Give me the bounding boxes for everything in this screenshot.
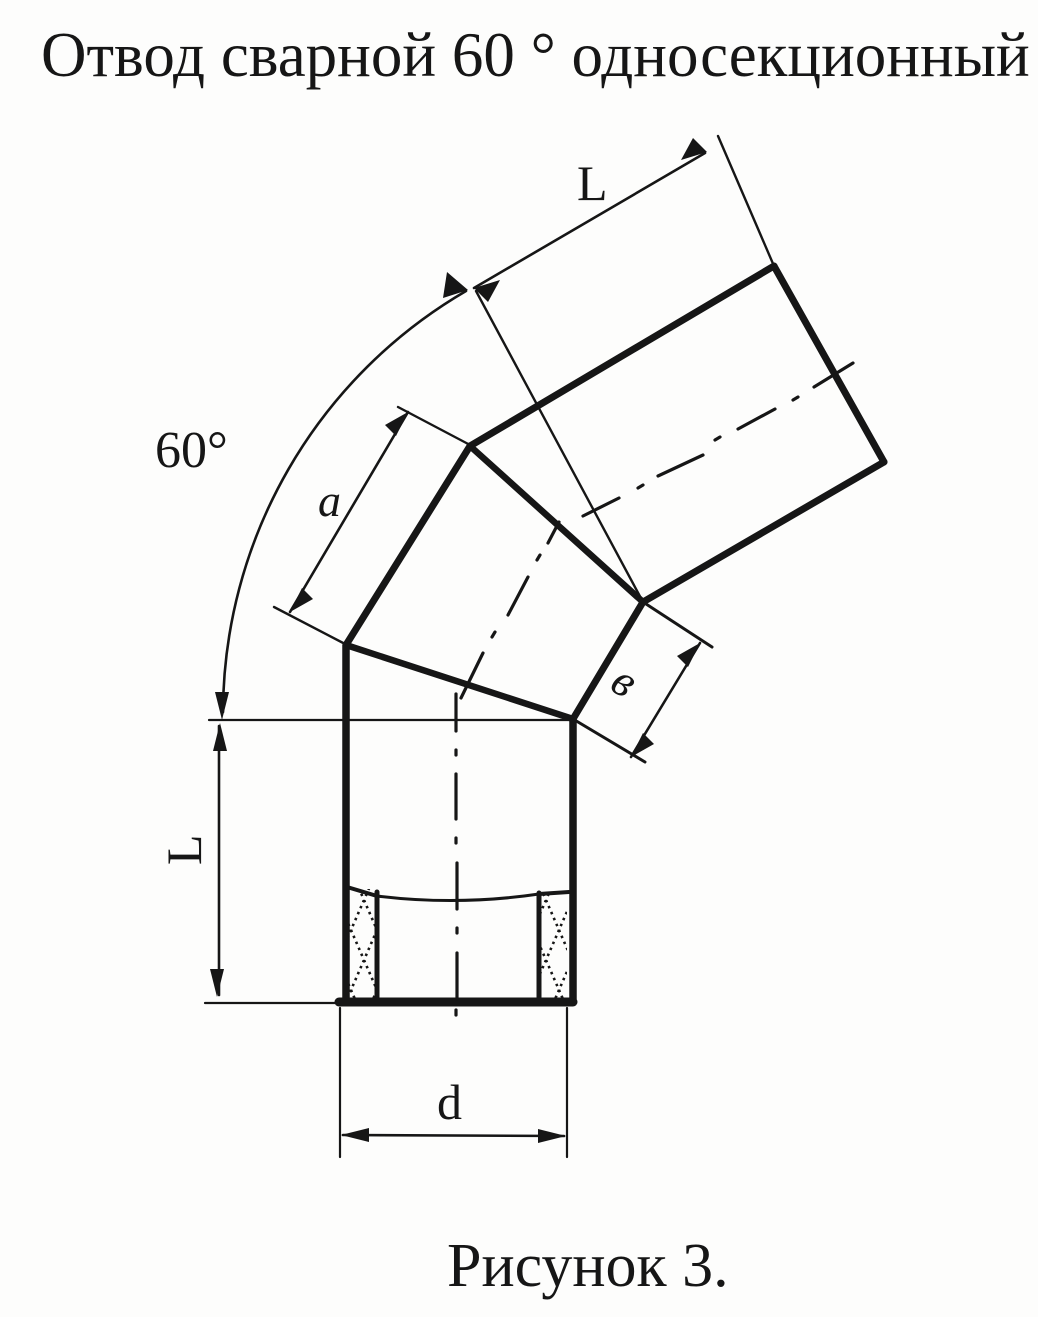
svg-text:60°: 60° [155,422,228,479]
svg-text:Рисунок 3.: Рисунок 3. [447,1232,729,1300]
svg-text:Отвод сварной 60 ° односекцион: Отвод сварной 60 ° односекционный [41,20,1030,90]
svg-text:a: a [318,475,341,526]
svg-text:d: d [437,1074,462,1130]
svg-text:L: L [577,155,608,211]
svg-text:L: L [156,834,212,865]
